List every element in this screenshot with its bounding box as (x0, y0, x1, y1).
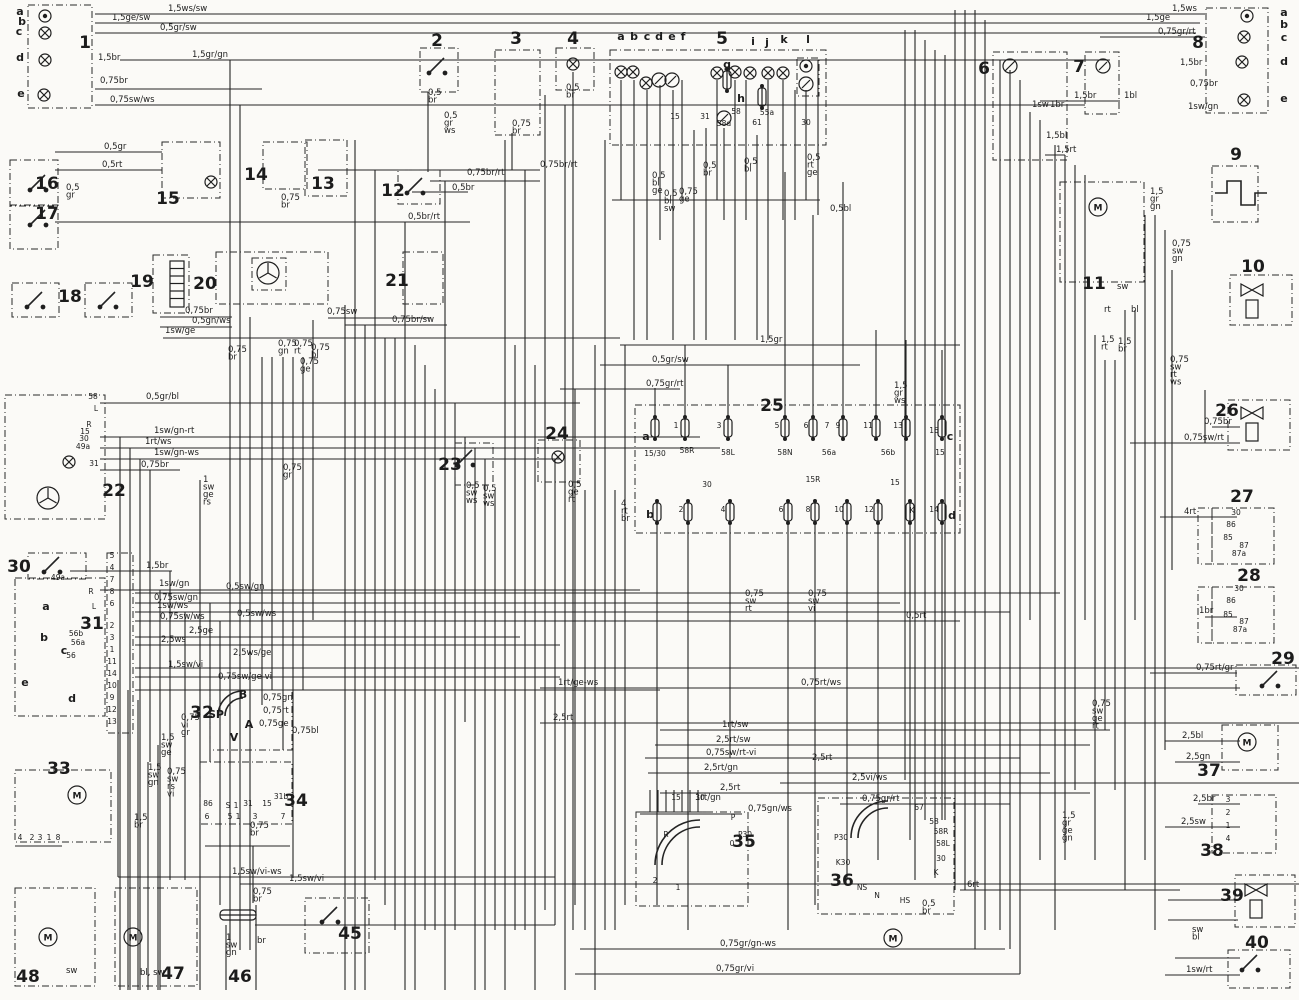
fuse-cap (875, 416, 878, 419)
motor-m: M (44, 934, 53, 944)
symbol-lampx-icon (711, 67, 723, 79)
symbol-lampx-icon (777, 67, 789, 79)
wire-label: 1,5gr (760, 335, 783, 345)
terminal-label: 10 (834, 505, 844, 514)
symbol-arc-icon (655, 820, 700, 865)
switch-lever (407, 178, 422, 193)
terminal-label: 1 (110, 645, 115, 654)
terminal-label: 2 (30, 833, 35, 842)
component-number: 22 (102, 481, 126, 501)
fuse-cap (877, 500, 880, 503)
port-letter: e (17, 87, 24, 100)
port-letter: e (668, 30, 675, 43)
terminal-label: 58R (680, 446, 695, 455)
fuse-cap (941, 500, 944, 503)
component-number: 23 (438, 455, 462, 475)
switch-lever (44, 557, 59, 572)
terminal-label: 85 (1223, 610, 1233, 619)
component-number: 29 (1271, 649, 1295, 669)
symbol-lampd-icon (39, 10, 51, 22)
wire-label: swbl (1192, 925, 1203, 943)
symbol-gauge-icon (652, 73, 666, 87)
wire-label: br (257, 936, 266, 946)
symbol-gauge-icon (1096, 59, 1110, 73)
terminal-label: 49a (76, 442, 90, 451)
terminal-label: 15 (262, 799, 272, 808)
fuse-cap (684, 416, 687, 419)
component-outline (538, 440, 580, 482)
terminal-label: P30 (834, 833, 848, 842)
symbol-lampx-icon (39, 54, 51, 66)
fuse-cap (654, 416, 657, 419)
wire-label: 1swgers (203, 475, 214, 508)
wire-label: 0,5br (452, 183, 475, 193)
terminal-label: 58 (929, 817, 939, 826)
component-outline (610, 50, 826, 145)
symbol-fusev-icon (724, 416, 732, 441)
symbol-sw-icon (1260, 671, 1280, 688)
component-number: 2 (431, 31, 443, 51)
symbol-fusev-icon (681, 416, 689, 441)
symbol-gauge-icon (665, 73, 679, 87)
terminal-label: K (934, 868, 940, 877)
port-letter: a (642, 430, 649, 443)
component-number: 24 (545, 424, 569, 444)
symbol-fusev-icon (726, 500, 734, 525)
fuse-cap (761, 85, 764, 88)
port-letter: c (947, 430, 954, 443)
component-outline (5, 395, 105, 519)
switch-lever (27, 292, 42, 307)
switch-contact (28, 223, 32, 227)
wire-label: 2,5bl (1182, 731, 1203, 741)
switch-lever (100, 292, 115, 307)
symbol-lampx-icon (1238, 94, 1250, 106)
component-number: 37 (1197, 761, 1221, 781)
component-number: 10 (1241, 257, 1265, 277)
wire-label: 0,5sw/ws (237, 609, 277, 619)
terminal-label: NS (857, 883, 868, 892)
symbol-horn-icon (1241, 407, 1263, 441)
component-outline (15, 770, 111, 842)
fuse-cap (656, 500, 659, 503)
wire-label: 1sw/gn (159, 579, 189, 589)
fuse-cap (684, 438, 687, 441)
port-letter: A (245, 718, 254, 731)
wire-label: 4rt (1184, 507, 1197, 517)
symbol-motor-icon: M (884, 929, 902, 947)
wire-label: 0,75rt/gr (1196, 663, 1234, 673)
wire-label: 0,75swrsvi (167, 767, 186, 800)
terminal-label: 58L (721, 448, 736, 457)
terminal-label: 49a (51, 573, 65, 582)
wire-label: 0,75br/sw (392, 315, 434, 325)
wire-label: 0,75gn (263, 693, 293, 703)
terminal-label: 31 (700, 112, 710, 121)
port-letter: d (68, 692, 76, 705)
switch-contact (443, 71, 447, 75)
wire-label: bl (1131, 305, 1139, 315)
fuse-cap (656, 522, 659, 525)
terminal-label: K30 (836, 858, 851, 867)
component-number: 25 (760, 396, 784, 416)
fuse-cap (687, 500, 690, 503)
terminal-label: 30 (936, 854, 946, 863)
symbol-fusev-icon (684, 500, 692, 525)
wire-label: 0,5gr/sw (160, 23, 197, 33)
wire-label: 0,5gr/sw (652, 355, 689, 365)
fuse-cap (842, 438, 845, 441)
contact-arc (851, 801, 888, 838)
terminal-label: 58 (731, 107, 741, 116)
symbol-horn-icon (1241, 284, 1263, 318)
component-number: 32 (190, 703, 214, 723)
wire-label: 1,5br (1074, 91, 1097, 101)
port-letter: b (646, 508, 654, 521)
fuse-cap (846, 522, 849, 525)
motor-m: M (1094, 204, 1103, 214)
symbol-benz-icon (257, 262, 279, 284)
wire-label: 1,5grgn (1150, 187, 1164, 212)
horn-icon (1241, 407, 1263, 419)
component-number: 35 (732, 832, 756, 852)
terminal-label: 4 (18, 833, 23, 842)
fuse-cap (787, 500, 790, 503)
component-outline (1085, 52, 1119, 114)
fuse-cap (729, 500, 732, 503)
wire-label: 2,5vi/ws (852, 773, 888, 783)
component-number: 15 (156, 189, 180, 209)
terminal-label: 86 (203, 799, 213, 808)
wire-label: 0,5gr (104, 142, 127, 152)
wire-label: 0,75sw/rt-vi (706, 748, 756, 758)
port-letter: b (40, 631, 48, 644)
terminal-label: 56 (66, 651, 76, 660)
lamp-dot (804, 64, 807, 67)
symbol-lampx-icon (1236, 56, 1248, 68)
symbol-sw-icon (1240, 955, 1260, 972)
fuse-cap (727, 416, 730, 419)
terminal-label: 9 (836, 421, 841, 430)
wire-label: 1,5swge (161, 733, 175, 758)
wire-label: 0,75ge (300, 357, 319, 375)
wire-label: 0,75gr/gn-ws (720, 939, 776, 949)
wire-label: 0,5bl (830, 204, 851, 214)
terminal-label: 2 (110, 621, 115, 630)
wire-label: 0,75br (100, 76, 128, 86)
port-letter: c (61, 644, 68, 657)
terminal-label: 31 (89, 459, 99, 468)
motor-m: M (889, 935, 898, 945)
wire-label: 0,5gr/bl (146, 392, 179, 402)
switch-lever (322, 907, 337, 922)
horn-icon (1241, 284, 1263, 296)
wire-label: 0,75ge (679, 187, 698, 205)
port-letter: b (630, 30, 638, 43)
symbol-lampx-icon (615, 66, 627, 78)
component-number: 4 (567, 29, 579, 49)
gauge-needle (802, 80, 810, 88)
terminal-label: 87a (1232, 549, 1246, 558)
symbol-lampx-icon (627, 66, 639, 78)
terminal-label: 6 (205, 812, 210, 821)
switch-lever (1242, 955, 1257, 970)
symbol-fusev-icon (723, 68, 731, 93)
wire-label: 1,5ws (1172, 4, 1197, 14)
symbol-fusev-icon (651, 416, 659, 441)
gauge-needle (655, 76, 663, 84)
wire-label: sw (66, 966, 77, 976)
wire-label: 1swgn (226, 933, 237, 958)
wire-label: 1sw/gn-rt (154, 426, 195, 436)
component-number: 40 (1245, 933, 1269, 953)
wire-label: 0,75gn/ws (748, 804, 793, 814)
wire-label: 0,5bl (744, 157, 758, 175)
symbol-fuseh-icon (220, 910, 256, 920)
terminal-label: 1 (236, 812, 241, 821)
port-letter: a (42, 600, 49, 613)
wire-label: 1,5rt (1101, 335, 1115, 353)
port-letter: c (1281, 31, 1288, 44)
wire-label: 0,75swrtws (1170, 355, 1189, 388)
wire-label: 0,5br (428, 88, 442, 106)
component-number: 34 (284, 791, 308, 811)
terminal-label: 14 (107, 669, 117, 678)
terminal-label: 6 (804, 421, 809, 430)
wire-label: 2,5rt (553, 713, 574, 723)
needle (1005, 61, 1015, 71)
wire-label: 0,75gr/rt (1158, 27, 1196, 37)
wire-label: 0,5rt (906, 611, 927, 621)
wire-label: 1,5grgegn (1062, 811, 1076, 844)
component-outline (1060, 182, 1144, 282)
terminal-label: 6 (110, 599, 115, 608)
switch-contact (114, 305, 118, 309)
terminal-label: 1 (674, 421, 679, 430)
wire-label: 0,5br (566, 83, 580, 101)
fuse-cap (726, 90, 729, 93)
wire-labels-layer: 1,5ws/sw1,5ge/sw0,5gr/sw1,5gr/gn1,5br0,7… (66, 4, 1234, 978)
component-number: 46 (228, 967, 252, 987)
switch-contact (320, 920, 324, 924)
component-number: 39 (1220, 886, 1244, 906)
terminal-label: 30 (695, 793, 705, 802)
wire-label: 0,75br (1190, 79, 1218, 89)
wire-label: 2,5ws/ge (233, 648, 271, 658)
symbol-lampx-icon (39, 27, 51, 39)
terminal-label: 58d (717, 119, 732, 128)
component-number: 38 (1200, 841, 1224, 861)
component-outline (12, 283, 59, 317)
spoke (48, 498, 57, 503)
wire-label: 0,5br (703, 161, 717, 179)
symbol-sw-icon (320, 907, 340, 924)
component-outline (636, 812, 748, 906)
switch-contact (405, 191, 409, 195)
component-number: 17 (35, 204, 59, 224)
switch-contact (471, 463, 475, 467)
spoke (259, 273, 268, 278)
symbol-lampx-icon (1238, 31, 1250, 43)
wire-label: 0,75sw/rt (1184, 433, 1225, 443)
component-number: 6 (978, 59, 990, 79)
component-number: 9 (1230, 145, 1242, 165)
port-letter: d (16, 51, 24, 64)
symbol-sw-icon (42, 557, 62, 574)
wire-label: 0,75rt (263, 706, 289, 716)
wire-label: 6rt (967, 880, 980, 890)
wire-label: rt (1104, 305, 1111, 315)
terminal-label: 30 (702, 480, 712, 489)
wire-label: 0,75sw/ws (160, 612, 205, 622)
terminal-label: 58N (777, 448, 792, 457)
motor-m: M (129, 934, 138, 944)
terminal-label: 1 (47, 833, 52, 842)
terminal-label: 67 (914, 803, 924, 812)
wire-label: 0,75br (253, 887, 272, 905)
wire-label: 0,5rt (102, 160, 123, 170)
terminal-label: 30 (801, 118, 811, 127)
symbol-lampd-icon (1241, 10, 1253, 22)
fuse-cap (905, 438, 908, 441)
wire-label: 1,5br (98, 53, 121, 63)
port-letter: B (239, 688, 247, 701)
symbol-lampx-icon (640, 77, 652, 89)
wire-label: 1sw/gn (1188, 102, 1218, 112)
component-number: 1 (79, 33, 91, 53)
port-letter: h (737, 92, 745, 105)
wire-label: 2,5rt (812, 753, 833, 763)
wire-label: 0,75sw (327, 307, 357, 317)
port-letter: g (723, 58, 731, 71)
symbol-fusev-icon (872, 416, 880, 441)
wire-label: 1rt/ge-ws (558, 678, 599, 688)
wire-label: 1,5br (1118, 337, 1132, 355)
symbol-lampd-icon (800, 60, 812, 72)
terminal-label: 15 (935, 448, 945, 457)
symbol-gauge-icon (799, 77, 813, 91)
wire-label: 1,5ge (1146, 13, 1170, 23)
fuse-cap (784, 438, 787, 441)
wire-label: 0,75swgert (1092, 699, 1111, 732)
symbol-fusev-icon (902, 416, 910, 441)
component-number: 28 (1237, 566, 1261, 586)
symbol-fusev-icon (843, 500, 851, 525)
fuse-cap (727, 438, 730, 441)
component-number: 47 (161, 964, 185, 984)
component-number: 48 (16, 967, 40, 987)
switch-contact (1256, 968, 1260, 972)
terminal-label: P (731, 813, 736, 822)
switch-contact (421, 191, 425, 195)
port-letter: e (1280, 92, 1287, 105)
symbol-motor-icon: M (1089, 198, 1107, 216)
terminal-label: N (874, 891, 880, 900)
component-outline (403, 252, 443, 304)
fuse-cap (814, 522, 817, 525)
terminal-label: 55a (760, 108, 774, 117)
terminal-label: 15 (671, 793, 681, 802)
fuse-cap (814, 500, 817, 503)
port-letter: d (948, 509, 956, 522)
terminal-label: 4 (1226, 834, 1231, 843)
switch-contact (98, 305, 102, 309)
terminal-label: 30 (1231, 508, 1241, 517)
symbol-lampx-icon (744, 67, 756, 79)
component-number: 14 (244, 165, 268, 185)
wire-label: 0,5grws (444, 111, 458, 136)
gauge-needle (668, 76, 676, 84)
component-number: 21 (385, 271, 409, 291)
lamp-dot (1245, 14, 1248, 17)
terminal-label: 11 (863, 421, 873, 430)
wire-label: 1sw/rt (1186, 965, 1213, 975)
wire-label: 0,75br (228, 345, 247, 363)
port-letter: d (1280, 55, 1288, 68)
wire-label: 1sw/ws (157, 601, 189, 611)
terminal-label: 86 (1226, 596, 1236, 605)
component-outline (420, 48, 458, 92)
terminal-label: 5 (228, 812, 233, 821)
wire-label: 1,5sw/vi-ws (232, 867, 282, 877)
wire-label: 2,5rt (720, 783, 741, 793)
wire-label: 0,75rt/ws (801, 678, 842, 688)
symbol-horn-icon (1245, 884, 1267, 918)
terminal-label: 58R (934, 827, 949, 836)
wire-label: 1,5br (134, 813, 148, 831)
wire-label: 1,5sw/vi (168, 660, 203, 670)
component-number: 27 (1230, 487, 1254, 507)
component-number: 26 (1215, 401, 1239, 421)
terminal-label: L (94, 404, 99, 413)
wire-label: 0,75swrt (745, 589, 764, 614)
fuse-cap (812, 438, 815, 441)
wire-label: 0,75br (250, 821, 269, 839)
wire-label: 0,75swgn (1172, 239, 1191, 264)
terminal-label: 10 (107, 681, 117, 690)
switch-contact (1276, 684, 1280, 688)
switch-contact (25, 305, 29, 309)
wire-label: 1,5bl (1046, 131, 1067, 141)
terminal-label: 15/30 (644, 449, 666, 458)
terminal-label: 5 (110, 551, 115, 560)
component-number: 7 (1073, 57, 1085, 77)
component-outline (85, 283, 132, 317)
component-number: 45 (338, 924, 362, 944)
port-letter: d (655, 30, 663, 43)
wire-label: 0,75br (512, 119, 531, 137)
contact-arc (858, 808, 888, 838)
wire-label: 0,75br/rt (540, 160, 578, 170)
terminal-label: 13 (107, 717, 117, 726)
symbol-lampx-icon (63, 456, 75, 468)
terminal-label: 16 (929, 426, 939, 435)
component-number: 16 (35, 174, 59, 194)
symbol-fusev-icon (781, 416, 789, 441)
terminal-label: 87a (1233, 625, 1247, 634)
wire-label: 0,75sw/ge-vi (218, 672, 272, 682)
wire-label: 1rt/ws (145, 437, 172, 447)
symbol-lampx-icon (762, 67, 774, 79)
port-letter: j (764, 36, 769, 49)
fuse-cap (941, 522, 944, 525)
symbol-motor-icon: M (68, 786, 86, 804)
port-letter: k (780, 33, 788, 46)
fuse-cap (877, 522, 880, 525)
symbol-sw-icon (98, 292, 118, 309)
component-number: 11 (1082, 274, 1106, 294)
port-letter: a (617, 30, 624, 43)
